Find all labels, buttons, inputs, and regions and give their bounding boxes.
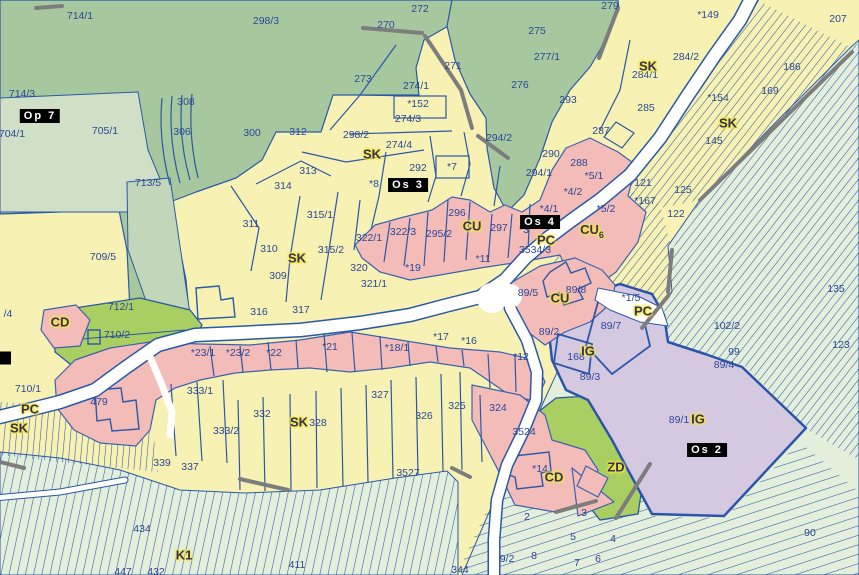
parcel-label: /4 [4, 308, 13, 320]
parcel-label: 434 [133, 523, 151, 535]
parcel-label: 321/1 [361, 278, 387, 290]
zone-label: PC [634, 304, 652, 319]
parcel-label: 298/3 [253, 15, 279, 27]
parcel-label: *19 [405, 262, 421, 274]
parcel-label: 328 [309, 417, 327, 429]
parcel-label: 709/5 [90, 251, 116, 263]
parcel-label: 273 [354, 73, 372, 85]
parcel-label: 297 [490, 222, 508, 234]
parcel-label: 311 [243, 218, 260, 230]
designation-label [0, 352, 11, 365]
zone-label: CD [545, 470, 564, 485]
zone-label-text: ZD [607, 460, 624, 475]
parcel-label: *8 [369, 178, 379, 190]
parcel-label: 3 [581, 507, 587, 519]
parcel-label: 9/2 [500, 553, 515, 565]
parcel-label: 276 [511, 79, 529, 91]
parcel-label: 714/1 [67, 10, 93, 22]
parcel-label: 3527 [396, 467, 419, 479]
parcel-label: 411 [289, 559, 306, 571]
parcel-label: 135 [827, 283, 845, 295]
zone-label-text: SK [288, 251, 306, 266]
parcel-label: 479 [90, 396, 108, 408]
zone-label: K1 [176, 548, 193, 563]
parcel-label: 314 [274, 180, 292, 192]
parcel-label: 294/2 [486, 132, 512, 144]
parcel-label: 292 [409, 162, 427, 174]
zone-label: CU6 [580, 222, 604, 240]
parcel-label: 322/1 [356, 232, 382, 244]
parcel-label: 121 [634, 177, 652, 189]
parcel-label: *11 [476, 253, 491, 265]
parcel-label: *4/2 [564, 186, 583, 198]
zone-label-text: IG [691, 412, 705, 427]
parcel-label: *14 [532, 463, 548, 475]
parcel-label: 4 [610, 533, 616, 545]
parcel-label: 89/5 [518, 287, 538, 299]
parcel-label: 169 [761, 85, 779, 97]
parcel-label: 284/1 [632, 69, 658, 81]
zone-label-text: SK [719, 116, 737, 131]
parcel-label: 316 [250, 306, 268, 318]
parcel-label: *23/1 [191, 347, 216, 359]
parcel-label: 274/1 [403, 80, 429, 92]
parcel-label: 344 [451, 564, 469, 575]
parcel-label: 326 [415, 410, 433, 422]
parcel-label: *17 [433, 331, 449, 343]
parcel-label: 714/3 [9, 88, 35, 100]
zone-label-text: CD [51, 315, 70, 330]
parcel-label: 89/2 [539, 326, 559, 338]
zone-label: SK [288, 251, 306, 266]
parcel-label: 296 [448, 207, 466, 219]
zone-label-text: CU [580, 222, 599, 237]
parcel-label: *7 [447, 161, 457, 173]
parcel-label: *5/1 [585, 170, 604, 182]
map-viewport[interactable]: 714/1298/3272270275279*149207271277/1273… [0, 0, 859, 575]
zone-label-text: SK [290, 415, 308, 430]
parcel-label: 298/2 [343, 129, 369, 141]
parcel-label: 89/1 [669, 414, 689, 426]
parcel-label: *3 [519, 224, 529, 236]
zone-label-text: CD [545, 470, 564, 485]
parcel-label: 8 [531, 550, 537, 562]
parcel-label: 186 [783, 61, 801, 73]
zone-subscript: 6 [599, 230, 604, 240]
parcel-label: 2 [524, 511, 530, 523]
parcel-label: 168 [567, 351, 585, 363]
parcel-label: 713/5 [135, 177, 161, 189]
parcel-label: 89/4 [714, 359, 734, 371]
parcel-label: *1/5 [622, 292, 641, 304]
parcel-label: 7 [574, 557, 580, 569]
parcel-label: 270 [377, 19, 395, 31]
parcel-label: 332 [253, 408, 271, 420]
parcel-label: 320 [350, 262, 368, 274]
parcel-label: 3524 [512, 426, 535, 438]
zone-label-text: PC [634, 304, 652, 319]
parcel-label: 704/1 [0, 128, 25, 140]
zone-label: SK [363, 147, 381, 162]
parcel-label: *152 [407, 98, 429, 110]
designation-label: Os 2 [687, 443, 727, 457]
zone-label-text: PC [21, 402, 39, 417]
parcel-label: 275 [528, 25, 546, 37]
zone-label-text: PC [537, 233, 555, 248]
zone-label: ZD [607, 460, 624, 475]
parcel-label: 315/1 [307, 209, 333, 221]
parcel-label: 432 [147, 566, 165, 575]
parcel-label: 89/7 [601, 320, 621, 332]
parcel-label: 300 [243, 127, 261, 139]
zone-label: IG [581, 344, 595, 359]
parcel-label: *12 [513, 351, 529, 363]
zone-label: CU [551, 291, 570, 306]
parcel-label: *5/2 [597, 203, 616, 215]
parcel-label: 294/1 [526, 167, 552, 179]
parcel-label: 3534/3 [519, 244, 551, 256]
parcel-label: 274/4 [386, 139, 412, 151]
parcel-label: 274/3 [395, 113, 421, 125]
zone-label-text: CU [551, 291, 570, 306]
zone-label-text: CU [463, 219, 482, 234]
parcel-label: 293 [559, 94, 577, 106]
parcel-label: 288 [570, 157, 588, 169]
parcel-label: 285 [637, 102, 655, 114]
parcel-label: 271 [444, 60, 462, 72]
parcel-label: 317 [292, 304, 310, 316]
parcel-label: *22 [266, 347, 282, 359]
parcel-label: 337 [181, 461, 199, 473]
parcel-label: 333/2 [213, 425, 239, 437]
zone-label: PC [21, 402, 39, 417]
parcel-label: *16 [461, 335, 477, 347]
parcel-label: 290 [542, 148, 560, 160]
zone-label: CU [463, 219, 482, 234]
designation-label: Os 4 [520, 215, 560, 229]
parcel-label: 287 [592, 125, 610, 137]
parcel-label: 6 [595, 553, 601, 565]
zone-label-text: IG [581, 344, 595, 359]
parcel-label: *154 [707, 92, 729, 104]
parcel-label: 207 [829, 13, 847, 25]
zone-label-text: SK [10, 421, 28, 436]
parcel-label: 313 [299, 165, 317, 177]
parcel-label: *23/2 [226, 347, 251, 359]
parcel-label: 99 [728, 346, 740, 358]
map-labels-layer: 714/1298/3272270275279*149207271277/1273… [0, 0, 859, 575]
zone-label-text: K1 [176, 548, 193, 563]
parcel-label: 272 [411, 3, 429, 15]
parcel-label: 712/1 [108, 301, 134, 313]
parcel-label: 705/1 [92, 125, 118, 137]
parcel-label: 284/2 [673, 51, 699, 63]
parcel-label: 306 [173, 126, 191, 138]
parcel-label: 89/8 [566, 284, 586, 296]
zone-label: PC [537, 233, 555, 248]
zone-label: IG [691, 412, 705, 427]
parcel-label: *167 [634, 195, 656, 207]
parcel-label: 90 [804, 527, 816, 539]
parcel-label: *149 [697, 9, 719, 21]
parcel-label: 308 [177, 96, 195, 108]
parcel-label: 322/3 [390, 226, 416, 238]
parcel-label: 315/2 [318, 244, 344, 256]
zone-label: SK [290, 415, 308, 430]
parcel-label: 333/1 [187, 385, 213, 397]
zone-label: SK [639, 59, 657, 74]
zone-label-text: SK [363, 147, 381, 162]
parcel-label: 279 [601, 0, 619, 12]
parcel-label: 295/2 [426, 228, 452, 240]
parcel-label: 312 [289, 126, 307, 138]
parcel-label: 145 [705, 135, 723, 147]
parcel-label: 5 [570, 531, 576, 543]
parcel-label: 447 [114, 566, 132, 575]
parcel-label: 310 [260, 243, 278, 255]
parcel-label: *18/1 [385, 342, 410, 354]
parcel-label: 122 [667, 208, 685, 220]
zone-label-text: SK [639, 59, 657, 74]
zone-label: SK [10, 421, 28, 436]
parcel-label: 324 [489, 402, 507, 414]
designation-label: Op 7 [20, 109, 60, 123]
parcel-label: 309 [269, 270, 287, 282]
parcel-label: 277/1 [534, 51, 560, 63]
parcel-label: 710/2 [104, 329, 130, 341]
parcel-label: 125 [674, 184, 692, 196]
parcel-label: 102/2 [714, 320, 740, 332]
zone-label: CD [51, 315, 70, 330]
parcel-label: 327 [371, 389, 389, 401]
zone-label: SK [719, 116, 737, 131]
parcel-label: 123 [832, 339, 850, 351]
parcel-label: 710/1 [15, 383, 41, 395]
parcel-label: *4/1 [540, 203, 559, 215]
parcel-label: 339 [153, 457, 171, 469]
designation-label: Os 3 [388, 178, 428, 192]
parcel-label: *21 [322, 341, 338, 353]
parcel-label: 89/3 [580, 371, 600, 383]
parcel-label: 325 [448, 400, 466, 412]
